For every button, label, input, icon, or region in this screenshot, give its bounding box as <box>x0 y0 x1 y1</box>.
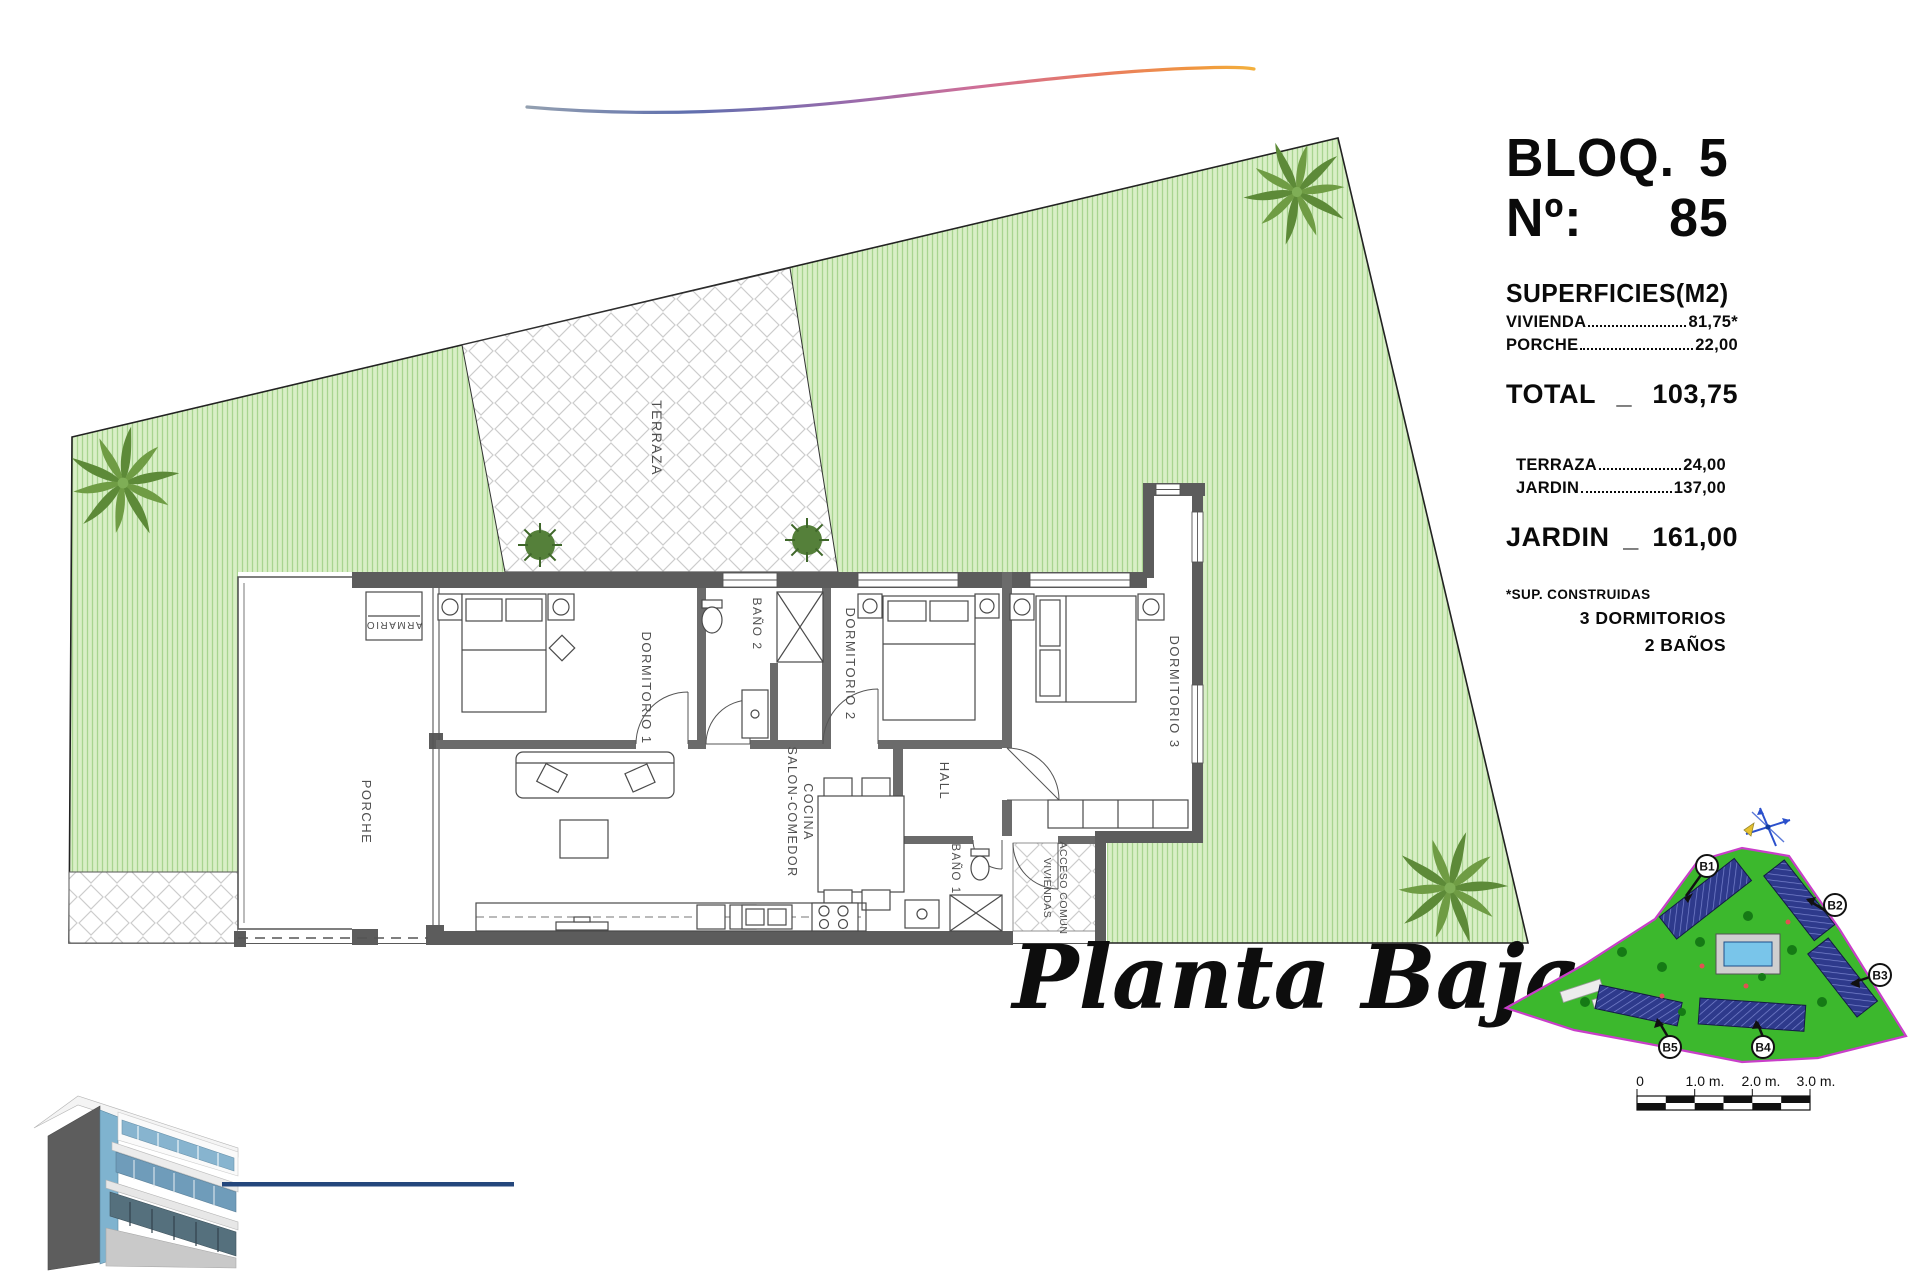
room-label-bano2: BAÑO 2 <box>750 597 764 650</box>
leader-dots <box>1588 325 1686 327</box>
room-label-salon-line2: COCINA <box>801 783 815 841</box>
room-label-acceso-line1: ACCESO COMUN <box>1057 842 1069 935</box>
room-label-dormitorio1: DORMITORIO 1 <box>639 631 654 744</box>
info-panel: BLOQ. 5 Nº: 85 SUPERFICIES(M2) VIVIENDA … <box>1506 128 1738 656</box>
header-swoosh-decoration <box>527 67 1254 112</box>
building-render <box>34 1096 514 1270</box>
scale-tick-3: 3.0 m. <box>1797 1073 1836 1089</box>
superficie-row-vivienda: VIVIENDA 81,75* <box>1506 313 1738 332</box>
feature-banos: 2 BAÑOS <box>1506 635 1738 656</box>
room-label-bano1: BAÑO 1 <box>949 843 962 894</box>
room-label-porche: PORCHE <box>359 780 374 845</box>
room-label-terraza: TERRAZA <box>649 400 665 476</box>
terraza-value: 24,00 <box>1683 456 1726 475</box>
superficie-row-porche: PORCHE 22,00 <box>1506 336 1738 355</box>
plan-caption: Planta Baja <box>1009 925 1581 1029</box>
jardin-total-separator: _ <box>1623 522 1639 553</box>
leader-dots <box>1581 491 1671 493</box>
unit-number: Nº: 85 <box>1506 188 1729 248</box>
room-label-acceso-line2: VIVIENDAS <box>1041 858 1053 919</box>
unit-number-value: 85 <box>1669 188 1729 248</box>
block-title: BLOQ. 5 <box>1506 128 1729 188</box>
room-label-armario: ARMARIO <box>365 619 422 630</box>
porche-label: PORCHE <box>1506 336 1578 355</box>
total-separator: _ <box>1616 379 1632 410</box>
paved-patch <box>69 872 238 943</box>
block-value: 5 <box>1699 128 1729 188</box>
leader-dots <box>1599 468 1681 470</box>
unit-number-label: Nº: <box>1506 188 1583 248</box>
floorplan-page: TERRAZA PORCHE ARMARIO DORMITORIO 1 BAÑO… <box>0 0 1920 1280</box>
superficie-row-jardin: JARDIN 137,00 <box>1516 479 1726 498</box>
feature-dormitorios: 3 DORMITORIOS <box>1506 608 1738 629</box>
scale-tick-0: 0 <box>1636 1073 1644 1089</box>
room-label-salon-line1: SALON-COMEDOR <box>785 746 799 877</box>
jardin-total-label: JARDIN <box>1506 522 1610 553</box>
superficies-title: SUPERFICIES(M2) <box>1506 278 1726 309</box>
marker-b1: B1 <box>1699 860 1715 874</box>
jardin-total-row: JARDIN _ 161,00 <box>1506 522 1738 553</box>
marker-b5: B5 <box>1662 1041 1678 1055</box>
terraza-label: TERRAZA <box>1516 456 1597 475</box>
scale-bar: 0 1.0 m. 2.0 m. 3.0 m. <box>1636 1073 1835 1110</box>
block-label: BLOQ. <box>1506 128 1675 188</box>
vivienda-label: VIVIENDA <box>1506 313 1586 332</box>
scale-tick-2: 2.0 m. <box>1742 1073 1781 1089</box>
total-row: TOTAL _ 103,75 <box>1506 379 1738 410</box>
marker-b2: B2 <box>1827 899 1843 913</box>
leader-dots <box>1580 348 1693 350</box>
total-label: TOTAL <box>1506 379 1596 410</box>
superficie-row-terraza: TERRAZA 24,00 <box>1516 456 1726 475</box>
divider-line <box>222 1182 514 1187</box>
scale-tick-1: 1.0 m. <box>1686 1073 1725 1089</box>
marker-b4: B4 <box>1755 1041 1771 1055</box>
compass-icon <box>1744 808 1790 846</box>
footnote: *SUP. CONSTRUIDAS <box>1506 587 1738 602</box>
vivienda-value: 81,75* <box>1688 313 1738 332</box>
total-value: 103,75 <box>1652 379 1738 410</box>
room-label-dormitorio3: DORMITORIO 3 <box>1167 635 1182 748</box>
jardin-label: JARDIN <box>1516 479 1579 498</box>
room-label-hall: HALL <box>937 762 952 801</box>
porche-value: 22,00 <box>1695 336 1738 355</box>
jardin-value: 137,00 <box>1674 479 1726 498</box>
room-label-dormitorio2: DORMITORIO 2 <box>843 607 858 720</box>
marker-b3: B3 <box>1872 969 1888 983</box>
jardin-total-value: 161,00 <box>1652 522 1738 553</box>
